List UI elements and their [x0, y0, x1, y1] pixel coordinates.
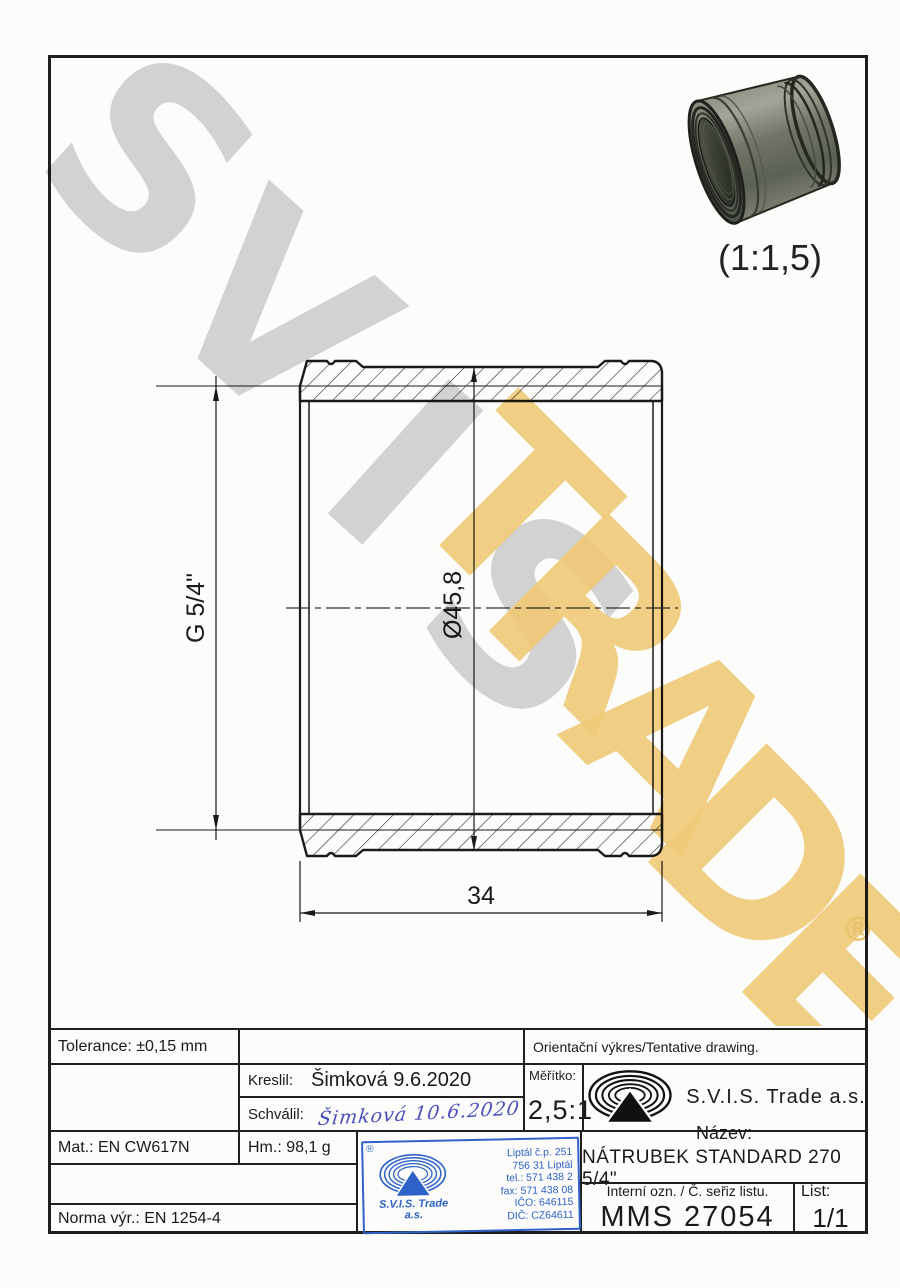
sheet-number-value: 1/1	[812, 1203, 848, 1234]
empty-cell-bottom	[48, 1163, 358, 1205]
top-wall-section	[300, 361, 662, 401]
stamp-ico-line: IČO: 646115	[514, 1196, 573, 1210]
empty-cell-left	[48, 1063, 240, 1132]
internal-code-value: MMS 27054	[600, 1201, 774, 1234]
stamp-registered-mark: ®	[366, 1144, 374, 1155]
norm-text: Norma výr.: EN 1254-4	[50, 1210, 229, 1228]
internal-code-cell: Interní ozn. / Č. seřiz listu. MMS 27054	[580, 1182, 795, 1234]
kreslil-label: Kreslil:	[240, 1072, 297, 1089]
kreslil-value: Šimková 9.6.2020	[297, 1069, 471, 1092]
empty-cell-top	[238, 1028, 525, 1065]
weight-cell: Hm.: 98,1 g	[238, 1130, 358, 1165]
dimension-thread: G 5/4"	[182, 376, 219, 840]
stamp-dic-line: DIČ: CZ64611	[507, 1208, 574, 1222]
internal-code-label: Interní ozn. / Č. seřiz listu.	[607, 1183, 769, 1199]
svis-logo-icon	[584, 1069, 676, 1127]
dim-diameter-label: Ø45,8	[439, 571, 467, 639]
stamp-logo-block: S.V.I.S. Trade a.s.	[363, 1152, 463, 1222]
drawing-sheet: G 5/4" Ø45,8 34	[0, 0, 900, 1288]
name-cell: Název: NÁTRUBEK STANDARD 270 5/4"	[580, 1130, 868, 1184]
dim-thread-label: G 5/4"	[182, 573, 210, 643]
bottom-wall-section	[300, 814, 662, 856]
material-cell: Mat.: EN CW617N	[48, 1130, 240, 1165]
scale-label: Měřítko:	[525, 1065, 576, 1083]
render-scale-caption: (1:1,5)	[718, 237, 822, 278]
product-photo	[678, 64, 852, 229]
sheet-number-cell: List: 1/1	[793, 1182, 868, 1234]
schvalil-cell: Schválil: Šimková 10.6.2020	[238, 1096, 525, 1132]
stamp-address-block: Liptál č.p. 251 756 31 Liptál tel.: 571 …	[462, 1146, 579, 1223]
dim-length-label: 34	[467, 882, 495, 910]
tentative-drawing-cell: Orientační výkres/Tentative drawing.	[523, 1028, 868, 1065]
scale-cell: Měřítko: 2,5:1	[523, 1063, 584, 1132]
tentative-drawing-text: Orientační výkres/Tentative drawing.	[525, 1039, 767, 1055]
dimension-length: 34	[300, 861, 662, 922]
tolerance-text: Tolerance: ±0,15 mm	[50, 1038, 215, 1056]
weight-text: Hm.: 98,1 g	[240, 1139, 339, 1157]
kreslil-cell: Kreslil: Šimková 9.6.2020	[238, 1063, 525, 1098]
company-cell: S.V.I.S. Trade a.s.	[582, 1063, 868, 1132]
stamp-company-suffix: a.s.	[405, 1209, 424, 1221]
company-name: S.V.I.S. Trade a.s.	[686, 1086, 865, 1109]
norm-cell: Norma výr.: EN 1254-4	[48, 1203, 358, 1234]
svis-logo-stamp-icon	[376, 1152, 451, 1200]
schvalil-label: Schválil:	[240, 1106, 308, 1123]
sheet-number-label: List:	[795, 1183, 830, 1201]
socket-section	[156, 361, 678, 856]
tolerance-cell: Tolerance: ±0,15 mm	[48, 1028, 240, 1065]
company-stamp: ® S.V.I.S. Trade a.s. Liptál č.p. 251 75…	[361, 1137, 581, 1235]
schvalil-signature: Šimková 10.6.2020	[307, 1097, 521, 1130]
dimension-diameter: Ø45,8	[439, 367, 477, 851]
name-label: Název:	[696, 1123, 752, 1144]
material-text: Mat.: EN CW617N	[50, 1139, 198, 1157]
